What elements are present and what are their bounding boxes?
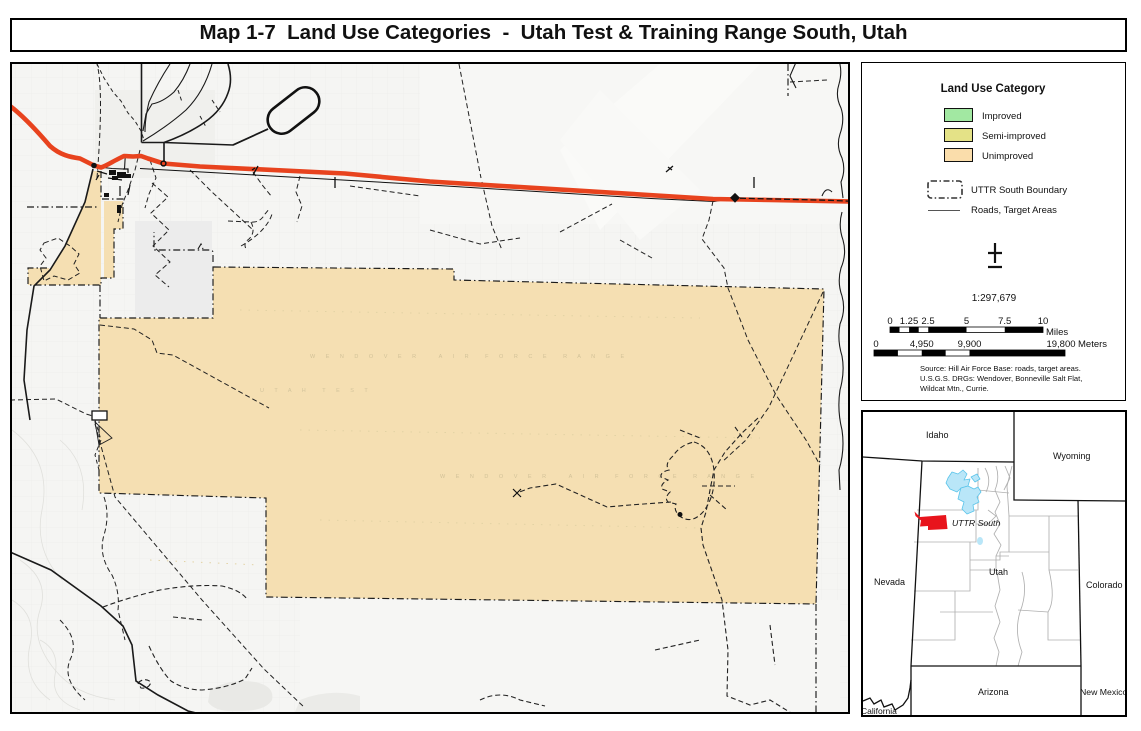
svg-text:U T A H T E S T: U T A H T E S T <box>260 388 372 394</box>
svg-text:UTTR South: UTTR South <box>952 518 1000 528</box>
svg-text:Idaho: Idaho <box>926 430 949 440</box>
svg-text:4,950: 4,950 <box>910 339 934 350</box>
svg-text:2.5: 2.5 <box>921 316 934 327</box>
svg-text:Utah: Utah <box>989 567 1008 577</box>
svg-text:Miles: Miles <box>1046 327 1068 337</box>
svg-text:0: 0 <box>887 316 892 327</box>
svg-text:0: 0 <box>873 339 878 350</box>
svg-text:Meters: Meters <box>1078 339 1107 350</box>
svg-text:W E N D O V E R A I R F O R: W E N D O V E R A I R F O R C E R A N G … <box>310 354 629 360</box>
svg-text:Colorado: Colorado <box>1086 580 1123 590</box>
svg-text:7.5: 7.5 <box>998 316 1011 327</box>
svg-text:Wyoming: Wyoming <box>1053 451 1090 461</box>
svg-text:10: 10 <box>1038 316 1049 327</box>
svg-text:Nevada: Nevada <box>874 577 905 587</box>
svg-text:W E N D O V E R A I R F O R: W E N D O V E R A I R F O R C E R A N G … <box>440 474 759 480</box>
svg-text:California: California <box>863 706 897 715</box>
svg-text:5: 5 <box>964 316 969 327</box>
svg-text:New Mexico: New Mexico <box>1080 687 1125 697</box>
svg-text:9,900: 9,900 <box>958 339 982 350</box>
svg-text:Arizona: Arizona <box>978 687 1009 697</box>
svg-text:19,800: 19,800 <box>1046 339 1075 350</box>
svg-text:1.25: 1.25 <box>900 316 919 327</box>
